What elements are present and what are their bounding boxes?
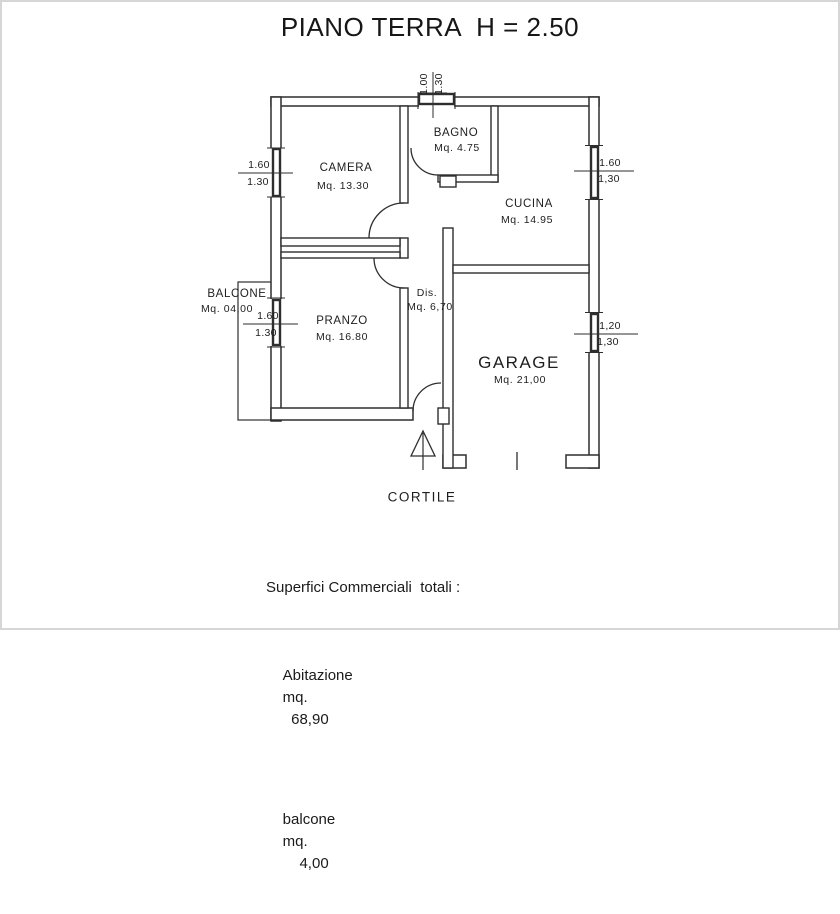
pranzo-door-arc [374,258,404,288]
dim-garage-window-width: 1,20 [599,320,621,332]
dim-pranzo-window-width: 1.60 [257,310,279,322]
room-area-bagno: Mq. 4.75 [434,142,480,154]
summary-label: balcone [283,809,379,831]
entrance-arrow [411,431,435,470]
camera-door-arc [369,203,404,238]
summary-unit: mq. [283,687,325,709]
dim-top-window-width: 1.00 [418,73,430,95]
dim-pranzo-window-height: 1.30 [255,327,277,339]
room-area-pranzo: Mq. 16.80 [316,331,368,343]
room-area-dis: Mq. 6,70 [407,301,453,313]
summary-unit: mq. [283,831,325,853]
room-label-balcone: BALCONE [207,288,266,300]
room-label-camera: CAMERA [320,162,373,174]
room-label-dis: Dis. [417,287,437,299]
room-label-bagno: BAGNO [434,127,479,139]
summary-heading: Superfici Commerciali totali : [266,579,460,596]
dim-cucina-window-width: 1.60 [599,157,621,169]
summary-row-balcone: balcone mq. 4,00 [266,787,460,897]
room-area-cucina: Mq. 14.95 [501,214,553,226]
room-label-pranzo: PRANZO [316,315,368,327]
dim-cucina-window-height: 1,30 [598,173,620,185]
dim-garage-window-height: 1,30 [597,336,619,348]
dim-camera-window-height: 1.30 [247,176,269,188]
room-area-balcone: Mq. 04,00 [201,303,253,315]
summary-label: Abitazione [283,665,379,687]
room-label-cucina: CUCINA [505,198,553,210]
room-area-garage: Mq. 21,00 [494,374,546,386]
dim-top-window-height: 1.30 [433,73,445,95]
cortile-door-arc [413,383,441,411]
room-area-camera: Mq. 13.30 [317,180,369,192]
summary-value: 4,00 [283,853,329,875]
label-cortile: CORTILE [388,490,457,505]
dimension-lines [238,72,638,334]
dim-camera-window-width: 1.60 [248,159,270,171]
summary-value: 68,90 [283,709,329,731]
surfaces-summary: Superfici Commerciali totali : Abitazion… [266,545,460,914]
summary-row-abitazione: Abitazione mq. 68,90 [266,643,460,753]
room-label-garage: GARAGE [478,353,560,373]
